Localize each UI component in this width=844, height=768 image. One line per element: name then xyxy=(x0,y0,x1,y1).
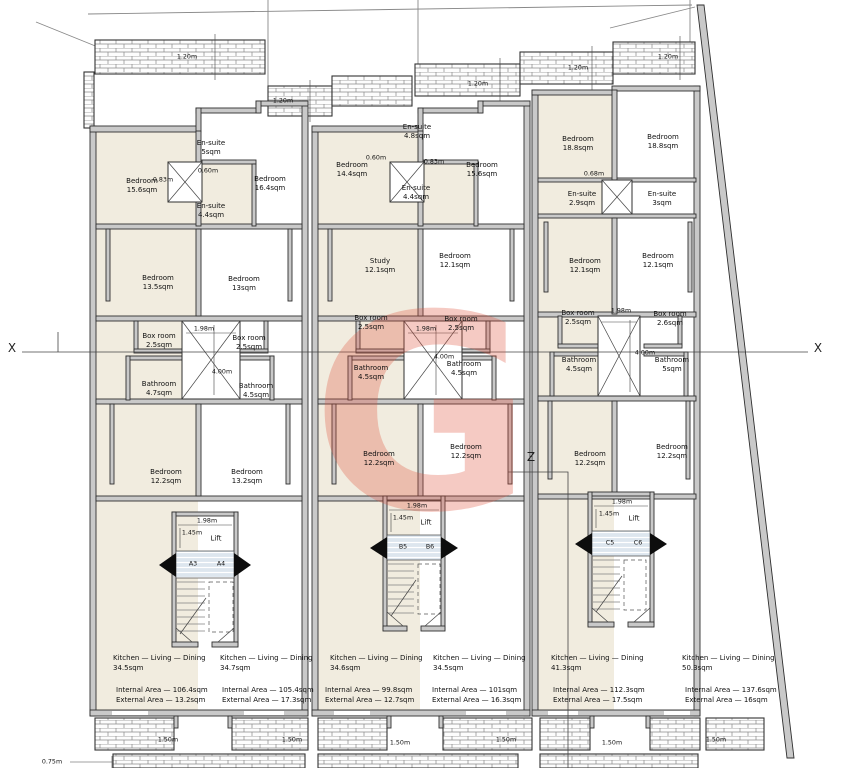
room-label: Bathroom 4.5sqm xyxy=(354,364,388,382)
dim-offset: 0.75m xyxy=(42,759,62,766)
room-label: Bedroom 14.4sqm xyxy=(336,161,368,179)
room-label: Bedroom 13.5sqm xyxy=(142,274,174,292)
slanted-boundary-wall xyxy=(697,5,794,758)
flat-label: A4 xyxy=(217,561,225,568)
room-label: Bedroom 12.2sqm xyxy=(450,443,482,461)
dim-label: 1.98m xyxy=(407,503,427,510)
room-label: En-suite 4.4sqm xyxy=(197,202,225,220)
room-label: Bedroom 12.2sqm xyxy=(363,450,395,468)
kitchen-label: Kitchen — Living — Dining 34.7sqm xyxy=(220,654,313,673)
areas-label: Internal Area — 137.6sqm External Area —… xyxy=(685,686,777,705)
dim-label: 4.00m xyxy=(212,369,232,376)
flat-label: A3 xyxy=(189,561,197,568)
areas-label: Internal Area — 101sqm External Area — 1… xyxy=(432,686,521,705)
kitchen-label: Kitchen — Living — Dining 34.6sqm xyxy=(330,654,423,673)
dim-parapet-1: 1.20m xyxy=(177,54,197,61)
room-label: Bedroom 18.8sqm xyxy=(562,135,594,153)
section-marker-x-right: X xyxy=(814,341,822,355)
dim-label: 1.98m xyxy=(612,499,632,506)
dim-yard-6: 1.50m xyxy=(706,737,726,744)
room-label: Bedroom 12.2sqm xyxy=(150,468,182,486)
room-label: En-suite 4.4sqm xyxy=(402,184,430,202)
dim-yard-1: 1.50m xyxy=(158,737,178,744)
room-label: Bedroom 16.4sqm xyxy=(254,175,286,193)
floor-plan-drawing: G xyxy=(0,0,844,768)
room-label: Box room 2.5sqm xyxy=(561,309,594,327)
room-label: Box room 2.5sqm xyxy=(142,332,175,350)
room-label: Bathroom 4.5sqm xyxy=(239,382,273,400)
flat-label: B5 xyxy=(399,544,407,551)
dim-parapet-4: 1.20m xyxy=(568,65,588,72)
kitchen-label: Kitchen — Living — Dining 34.5sqm xyxy=(433,654,526,673)
room-label: En-suite 3sqm xyxy=(648,190,676,208)
dim-label: 1.98m xyxy=(416,326,436,333)
flat-label: B6 xyxy=(426,544,434,551)
dim-label: 1.45m xyxy=(182,530,202,537)
room-label: En-suite 4.8sqm xyxy=(403,123,431,141)
dim-label: 1.45m xyxy=(393,515,413,522)
dim-label: 1.98m xyxy=(611,308,631,315)
room-label: Bedroom 13sqm xyxy=(228,275,260,293)
room-label: Bathroom 4.5sqm xyxy=(447,360,481,378)
dim-label: 0.60m xyxy=(366,155,386,162)
room-label: Bedroom 12.2sqm xyxy=(656,443,688,461)
lift-label: Lift xyxy=(211,535,222,544)
room-label: Box room 2.5sqm xyxy=(444,315,477,333)
kitchen-label: Kitchen — Living — Dining 34.5sqm xyxy=(113,654,206,673)
room-label: Box room 2.5sqm xyxy=(232,334,265,352)
room-label: Bedroom 12.1sqm xyxy=(642,252,674,270)
room-label: Bedroom 18.8sqm xyxy=(647,133,679,151)
dim-parapet-2: 1.20m xyxy=(273,98,293,105)
lift-label: Lift xyxy=(629,515,640,524)
areas-label: Internal Area — 99.8sqm External Area — … xyxy=(325,686,414,705)
areas-label: Internal Area — 105.4sqm External Area —… xyxy=(222,686,314,705)
lift-label: Lift xyxy=(421,519,432,528)
dim-label: 0.68m xyxy=(584,171,604,178)
room-label: Bedroom 12.1sqm xyxy=(439,252,471,270)
dim-label: 1.98m xyxy=(194,326,214,333)
room-label: Bedroom 13.2sqm xyxy=(231,468,263,486)
areas-label: Internal Area — 112.3sqm External Area —… xyxy=(553,686,645,705)
dim-parapet-3: 1.20m xyxy=(468,81,488,88)
room-label: Bedroom 12.2sqm xyxy=(574,450,606,468)
room-label: Bathroom 5sqm xyxy=(655,356,689,374)
dim-yard-3: 1.50m xyxy=(390,740,410,747)
flat-label: C5 xyxy=(606,540,614,547)
room-label: Study 12.1sqm xyxy=(365,257,396,275)
section-marker-z: Z xyxy=(527,450,535,464)
floor-plan: G 1.20m 1.20m 1.20m 1.20m 1.20m 1.50m 1.… xyxy=(0,0,844,768)
dim-yard-5: 1.50m xyxy=(602,740,622,747)
dim-parapet-5: 1.20m xyxy=(658,54,678,61)
room-label: Bathroom 4.5sqm xyxy=(562,356,596,374)
dim-label: 4.00m xyxy=(635,350,655,357)
flat-label: C6 xyxy=(634,540,642,547)
dim-label: 0.83m xyxy=(424,159,444,166)
section-marker-x-left: X xyxy=(8,341,16,355)
room-label: En-suite 5sqm xyxy=(197,139,225,157)
room-label: En-suite 2.9sqm xyxy=(568,190,596,208)
room-label: Bathroom 4.7sqm xyxy=(142,380,176,398)
dim-label: 1.98m xyxy=(197,518,217,525)
dim-label: 1.45m xyxy=(599,511,619,518)
room-label: Box room 2.6sqm xyxy=(653,310,686,328)
room-label: Bedroom 12.1sqm xyxy=(569,257,601,275)
dim-label: 0.83m xyxy=(153,177,173,184)
kitchen-label: Kitchen — Living — Dining 50.3sqm xyxy=(682,654,775,673)
dim-yard-4: 1.50m xyxy=(496,737,516,744)
kitchen-label: Kitchen — Living — Dining 41.3sqm xyxy=(551,654,644,673)
dim-yard-2: 1.50m xyxy=(282,737,302,744)
room-label: Bedroom 15.6sqm xyxy=(466,161,498,179)
dim-label: 0.60m xyxy=(198,168,218,175)
areas-label: Internal Area — 106.4sqm External Area —… xyxy=(116,686,208,705)
room-label: Box room 2.5sqm xyxy=(354,314,387,332)
